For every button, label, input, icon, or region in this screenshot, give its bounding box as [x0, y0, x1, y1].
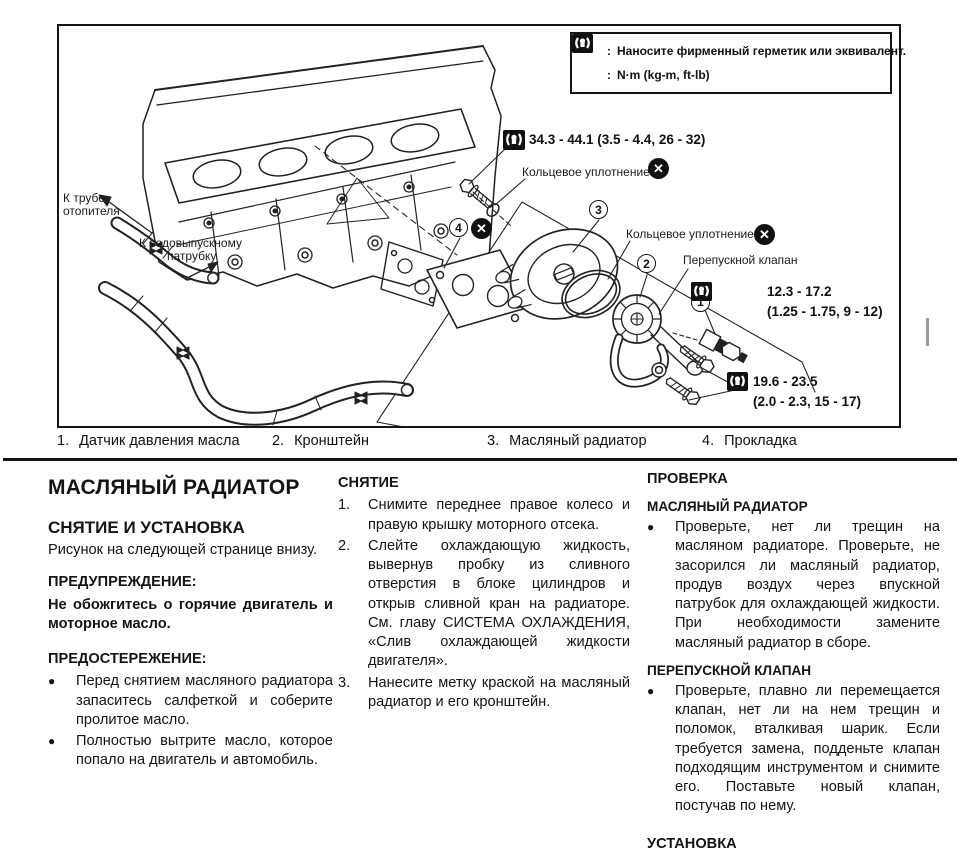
legend-colon: :	[607, 68, 611, 82]
page-edge-mark	[926, 318, 929, 346]
part-caption-2: 2. Кронштейн	[272, 433, 369, 449]
bullet-icon: ●	[48, 672, 76, 730]
torque-icon	[580, 66, 601, 85]
torque-icon	[503, 130, 524, 149]
legend-torque-label: N·m (kg-m, ft-lb)	[617, 68, 710, 82]
torque-spec-bolts: 19.6 - 23.5 (2.0 - 2.3, 15 - 17)	[727, 372, 861, 412]
torque-value-line1: 12.3 - 17.2	[767, 282, 883, 302]
warning-heading: ПРЕДУПРЕЖДЕНИЕ:	[48, 573, 333, 592]
diagram-panel: : Наносите фирменный герметик или эквива…	[57, 24, 901, 428]
replace-x-icon: ✕	[648, 158, 669, 179]
part-caption-4: 4. Прокладка	[702, 433, 797, 449]
part-caption-1: 1. Датчик давления масла	[57, 433, 240, 449]
list-item: ● Перед снятием масляного радиатора запа…	[48, 672, 333, 730]
torque-value-line2: (2.0 - 2.3, 15 - 17)	[753, 392, 861, 412]
heater-tube-label: К трубе отопителя	[63, 192, 120, 218]
intro-text: Рисунок на следующей странице внизу.	[48, 541, 333, 560]
list-item: 1. Снимите переднее правое колесо и прав…	[338, 496, 630, 535]
legend-box: : Наносите фирменный герметик или эквива…	[570, 32, 892, 94]
callout-4: 4	[449, 218, 468, 237]
bypass-valve-heading: ПЕРЕПУСКНОЙ КЛАПАН	[647, 662, 940, 680]
caution-list: ● Перед снятием масляного радиатора запа…	[48, 672, 333, 770]
column-right: ПРОВЕРКА МАСЛЯНЫЙ РАДИАТОР ● Проверьте, …	[647, 470, 940, 848]
torque-spec-sensor: 1 12.3 - 17.2 (1.25 - 1.75, 9 - 12)	[691, 282, 883, 322]
column-left: МАСЛЯНЫЙ РАДИАТОР СНЯТИЕ И УСТАНОВКА Рис…	[48, 470, 333, 773]
sealant-icon	[715, 293, 736, 312]
bullet-icon: ●	[647, 518, 675, 653]
oring-label-mid: Кольцевое уплотнение	[626, 228, 754, 241]
water-outlet-label: К водовыпускному патрубку	[139, 237, 242, 263]
caution-heading: ПРЕДОСТЕРЕЖЕНИЕ:	[48, 650, 333, 669]
legend-sealant-row: : Наносите фирменный герметик или эквива…	[580, 42, 882, 61]
torque-spec-cooler-bolt: 34.3 - 44.1 (3.5 - 4.4, 26 - 32)	[503, 130, 705, 149]
list-item: 3. Нанесите метку краской на масляный ра…	[338, 674, 630, 713]
oil-cooler-heading: МАСЛЯНЫЙ РАДИАТОР	[647, 498, 940, 516]
callout-2: 2	[637, 254, 656, 273]
list-item: 2. Слейте охлаждающую жидкость, вывернув…	[338, 537, 630, 672]
replace-x-icon: ✕	[754, 224, 775, 245]
legend-torque-row: : N·m (kg-m, ft-lb)	[580, 66, 882, 85]
legend-colon: :	[607, 44, 611, 58]
torque-value: 34.3 - 44.1 (3.5 - 4.4, 26 - 32)	[529, 132, 705, 147]
part-caption-3: 3. Масляный радиатор	[487, 433, 647, 449]
section-divider	[3, 458, 957, 461]
installation-heading: УСТАНОВКА	[647, 835, 940, 848]
inspection-heading: ПРОВЕРКА	[647, 470, 940, 489]
torque-icon	[727, 383, 748, 402]
bullet-icon: ●	[647, 682, 675, 817]
replace-x-icon: ✕	[471, 218, 492, 239]
callout-3: 3	[589, 200, 608, 219]
removal-installation-heading: СНЯТИЕ И УСТАНОВКА	[48, 517, 333, 539]
bypass-valve-label: Перепускной клапан	[683, 254, 797, 267]
removal-steps: 1. Снимите переднее правое колесо и прав…	[338, 496, 630, 712]
legend-sealant-label: Наносите фирменный герметик или эквивале…	[617, 44, 906, 58]
torque-icon	[741, 293, 762, 312]
list-item: ● Полностью вытрите масло, которое попал…	[48, 732, 333, 771]
torque-value-line2: (1.25 - 1.75, 9 - 12)	[767, 302, 883, 322]
service-manual-page: : Наносите фирменный герметик или эквива…	[0, 0, 960, 848]
page-title: МАСЛЯНЫЙ РАДИАТОР	[48, 474, 333, 502]
removal-heading: СНЯТИЕ	[338, 474, 630, 493]
oring-label-top: Кольцевое уплотнение	[522, 166, 650, 179]
list-item: ● Проверьте, плавно ли перемещается клап…	[647, 682, 940, 817]
bullet-icon: ●	[48, 732, 76, 771]
column-middle: СНЯТИЕ 1. Снимите переднее правое колесо…	[338, 474, 630, 714]
list-item: ● Проверьте, нет ли трещин на масляном р…	[647, 518, 940, 653]
torque-value-line1: 19.6 - 23.5	[753, 372, 861, 392]
warning-text: Не обожгитесь о горячие двигатель и мото…	[48, 596, 333, 635]
